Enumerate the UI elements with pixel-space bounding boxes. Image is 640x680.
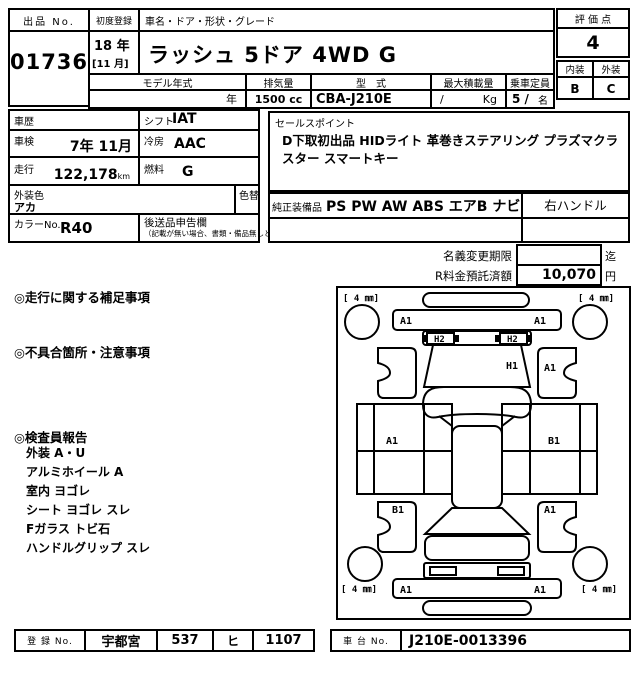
auction-sheet: { "header": { "lot_label": "出品 No.", "lo…	[0, 0, 640, 680]
displacement-cell: 排気量 1500 cc	[245, 73, 312, 109]
car-name-box: 車名・ドア・形状・グレード ラッシュ 5ドア 4WD G	[138, 8, 555, 75]
sales-point-text: D下取初出品 HIDライト 革巻きステアリング プラズマクラスター スマートキー	[270, 130, 628, 168]
headlight-tab	[528, 335, 532, 342]
spec-divider-1	[8, 129, 260, 131]
tire-front-right	[573, 305, 607, 339]
spec-vdivider-2	[138, 213, 140, 243]
sales-point-label: セールスポイント	[270, 113, 628, 130]
recycle-fee-box: 10,070	[516, 264, 602, 286]
registration-box: 登 録 No. 宇都宮 537 ヒ 1107	[14, 629, 315, 652]
mileage-unit: km	[118, 172, 130, 181]
lot-number-label: 出品 No.	[10, 10, 88, 32]
registration-class: 537	[156, 631, 212, 650]
grade-box-hdivider	[556, 76, 630, 78]
history-label: 車歴	[14, 113, 34, 128]
spec-vdivider-1	[138, 109, 140, 186]
mark-rear-bumper-right: A1	[534, 585, 546, 596]
name-change-box	[516, 244, 602, 266]
mileage-value-wrap: 122,178km	[18, 164, 130, 183]
color-no-label: カラーNo.	[14, 216, 61, 231]
equipment-label: 純正装備品	[272, 199, 322, 214]
inspector-report-list: 外装 A・U アルミホイール A 室内 ヨゴレ シート ヨゴレ スレ Fガラス …	[26, 444, 306, 558]
inspector-item: 外装 A・U	[26, 444, 306, 463]
a-pillar-right	[502, 416, 515, 426]
color-no-value: R40	[60, 219, 92, 237]
max-load-slash: /	[440, 93, 444, 106]
headlight-tab	[495, 335, 499, 342]
spec-divider-4	[8, 213, 260, 215]
capacity-label: 乗車定員	[507, 75, 553, 91]
score-box: 評 価 点 4	[556, 8, 630, 58]
model-year-label: モデル年式	[90, 75, 245, 91]
mark-left-door: A1	[386, 436, 398, 447]
tail-light-left	[430, 567, 456, 575]
ac-value: AAC	[174, 136, 206, 152]
mark-front-bumper-left: A1	[400, 316, 412, 327]
registration-label: 登 録 No.	[16, 631, 84, 650]
defects-label: ◎不具合箇所・注意事項	[14, 342, 150, 361]
first-registration-month: [11 月]	[90, 54, 138, 70]
windshield	[423, 387, 531, 418]
tire-rear-right	[573, 547, 607, 581]
mark-hood: H1	[506, 361, 518, 372]
chassis-value: J210E-0013396	[400, 631, 629, 650]
roof	[452, 426, 502, 508]
shift-label: シフト	[144, 113, 174, 128]
tire-rear-left	[348, 547, 382, 581]
model-year-cell: モデル年式 年	[88, 73, 247, 109]
tread-depth-front-left: [ 4 ㎜]	[343, 294, 379, 304]
headlight-tab	[422, 335, 426, 342]
capacity-value: 5 /	[512, 92, 529, 106]
model-code-label: 型 式	[312, 75, 430, 91]
rear-window	[425, 508, 529, 534]
first-registration-year: 18 年	[90, 32, 138, 54]
ac-label: 冷房	[144, 133, 164, 148]
fuel-label: 燃料	[144, 161, 164, 176]
model-year-value: 年	[90, 91, 245, 107]
capacity-cell: 乗車定員 5 / 名	[505, 73, 555, 109]
max-load-unit: Kg	[483, 93, 497, 106]
fuel-value: G	[182, 164, 194, 180]
handle-divider	[521, 217, 630, 219]
car-diagram-box: [ 4 ㎜] [ 4 ㎜] A1 A1 H2 H2 H1 A1 A1 B1 B1…	[336, 286, 631, 620]
rear-deck	[425, 536, 529, 560]
recycle-fee-suffix: 円	[605, 268, 616, 284]
max-load-label: 最大積載量	[432, 75, 505, 91]
sales-point-box: セールスポイント D下取初出品 HIDライト 革巻きステアリング プラズマクラス…	[268, 111, 630, 192]
headlight-tab	[455, 335, 459, 342]
score-value: 4	[558, 29, 628, 57]
mark-right-door: B1	[548, 436, 560, 447]
registration-kana: ヒ	[212, 631, 252, 650]
tread-depth-rear-left: [ 4 ㎜]	[341, 585, 377, 595]
model-code-value: CBA-J210E	[312, 91, 430, 107]
exterior-grade-value: C	[594, 79, 628, 98]
displacement-value: 1500 cc	[247, 91, 310, 107]
score-label: 評 価 点	[558, 10, 628, 29]
car-name-label: 車名・ドア・形状・グレード	[140, 10, 553, 32]
tread-depth-rear-right: [ 4 ㎜]	[581, 585, 617, 595]
body-color-value: アカ	[14, 199, 36, 215]
lot-number-value: 01736	[10, 32, 88, 92]
interior-grade-value: B	[558, 79, 592, 98]
color-change-label: 色替	[239, 187, 259, 202]
capacity-unit: 名	[538, 92, 548, 107]
inspector-item: アルミホイール A	[26, 463, 306, 482]
front-fender-left	[378, 348, 416, 398]
name-change-suffix: 迄	[605, 248, 616, 264]
running-notes-label: ◎走行に関する補足事項	[14, 287, 150, 306]
rear-bottom-strip	[423, 601, 531, 615]
inspection-value: 7年 11月	[22, 136, 132, 156]
car-diagram: [ 4 ㎜] [ 4 ㎜] A1 A1 H2 H2 H1 A1 A1 B1 B1…	[338, 288, 629, 618]
inspector-item: 室内 ヨゴレ	[26, 482, 306, 501]
mark-rear-bumper-left: A1	[400, 585, 412, 596]
interior-grade-label: 内装	[558, 62, 592, 75]
inspector-item: シート ヨゴレ スレ	[26, 501, 306, 520]
inspector-item: ハンドルグリップ スレ	[26, 539, 306, 558]
mark-rear-fender-left: B1	[392, 505, 404, 516]
mark-headlight-right: H2	[507, 335, 518, 345]
mileage-value: 122,178	[54, 167, 118, 183]
max-load-cell: 最大積載量 / Kg	[430, 73, 507, 109]
handle-value: 右ハンドル	[521, 194, 630, 215]
a-pillar-left	[439, 416, 452, 426]
mark-front-fender-right: A1	[544, 363, 556, 374]
first-registration-label: 初度登録	[90, 10, 138, 32]
name-change-value	[518, 246, 600, 250]
spec-vdivider-colorchange	[234, 184, 236, 215]
tail-light-right	[498, 567, 524, 575]
equipment-divider	[268, 217, 523, 219]
spec-divider-2	[8, 156, 260, 158]
mark-rear-fender-right: A1	[544, 505, 556, 516]
name-change-label: 名義変更期限	[340, 248, 512, 264]
recycle-fee-label: R料金預託済額	[340, 268, 512, 284]
tire-front-left	[345, 305, 379, 339]
inspector-item: Fガラス トビ石	[26, 520, 306, 539]
lot-number-box: 出品 No. 01736	[8, 8, 90, 107]
first-registration-box: 初度登録 18 年 [11 月]	[88, 8, 140, 75]
chassis-box: 車 台 No. J210E-0013396	[330, 629, 631, 652]
equipment-value: PS PW AW ABS エアB ナビ	[326, 196, 520, 216]
registration-area: 宇都宮	[84, 631, 156, 650]
mark-headlight-left: H2	[434, 335, 445, 345]
tread-depth-front-right: [ 4 ㎜]	[578, 294, 614, 304]
mark-front-bumper-right: A1	[534, 316, 546, 327]
car-name-value: ラッシュ 5ドア 4WD G	[140, 32, 553, 75]
spec-divider-3	[8, 184, 260, 186]
recycle-fee-value: 10,070	[518, 266, 600, 284]
displacement-label: 排気量	[247, 75, 310, 91]
registration-number: 1107	[252, 631, 313, 650]
exterior-grade-label: 外装	[594, 62, 628, 75]
shift-value: IAT	[172, 111, 197, 127]
model-code-cell: 型 式 CBA-J210E	[310, 73, 432, 109]
front-top-strip	[423, 293, 529, 307]
chassis-label: 車 台 No.	[332, 631, 400, 650]
